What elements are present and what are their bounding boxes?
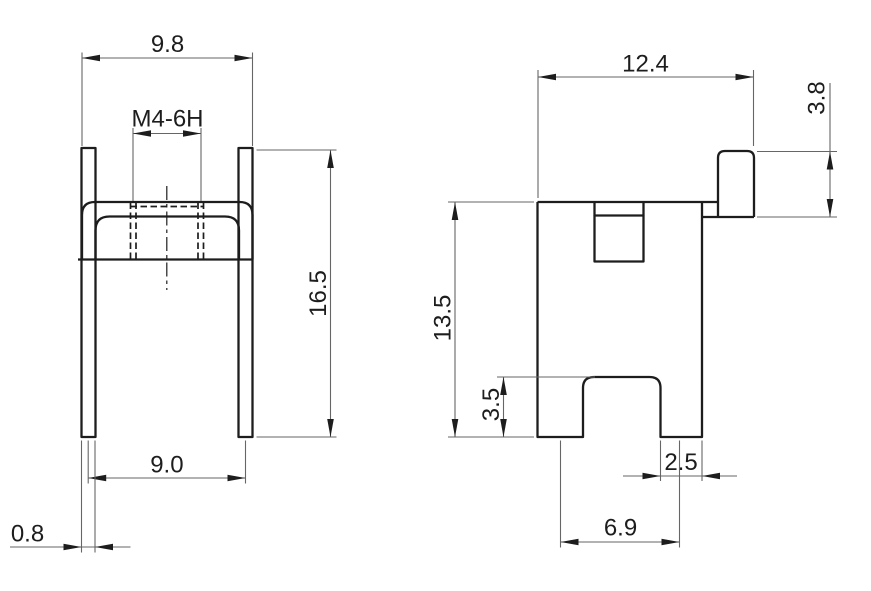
- side-view: [538, 151, 755, 437]
- dim-arrow: [702, 473, 720, 480]
- foot-spacing-dim-label: 6.9: [604, 515, 637, 542]
- dim-arrow: [643, 473, 661, 480]
- dim-arrow: [228, 475, 246, 482]
- dim-arrow: [736, 74, 754, 81]
- side-body-outline: [538, 202, 703, 437]
- front-view-dimensions: 9.8 M4-6H 16.5 9.0 0.8: [10, 31, 337, 553]
- front-view: [78, 148, 253, 437]
- slot-hole: [595, 216, 644, 262]
- front-width-dim-label: 9.8: [151, 31, 184, 58]
- dim-arrow: [64, 544, 82, 551]
- tab-height-dim-label: 3.8: [804, 81, 831, 114]
- dim-arrow: [82, 55, 100, 62]
- drawing-canvas: 9.8 M4-6H 16.5 9.0 0.8: [0, 0, 871, 591]
- thickness-dim-label: 0.8: [11, 521, 44, 548]
- foot-width-dim-label: 2.5: [664, 449, 697, 476]
- dim-arrow: [95, 544, 113, 551]
- side-view-dimensions: 12.4 3.8 13.5 3.5 2.5 6.9: [430, 51, 838, 548]
- dim-arrow: [235, 55, 253, 62]
- dim-arrow: [561, 539, 579, 546]
- technical-drawing: 9.8 M4-6H 16.5 9.0 0.8: [0, 0, 871, 591]
- dim-arrow: [88, 475, 106, 482]
- dim-arrow: [452, 202, 459, 220]
- dim-arrow: [827, 199, 834, 217]
- dim-arrow: [538, 74, 556, 81]
- thread-callout-label: M4-6H: [131, 106, 203, 133]
- dim-arrow: [827, 152, 834, 170]
- side-width-dim-label: 12.4: [622, 51, 669, 78]
- front-height-dim-label: 16.5: [305, 270, 332, 317]
- front-right-leg: [239, 148, 253, 437]
- side-tab: [718, 151, 754, 217]
- body-height-dim-label: 13.5: [430, 295, 457, 342]
- dim-arrow: [327, 150, 334, 168]
- leg-spacing-dim-label: 9.0: [150, 452, 183, 479]
- dim-arrow: [327, 419, 334, 437]
- front-left-leg: [82, 148, 96, 437]
- dim-arrow: [452, 419, 459, 437]
- dim-arrow: [662, 539, 680, 546]
- notch-height-dim-label: 3.5: [478, 388, 505, 421]
